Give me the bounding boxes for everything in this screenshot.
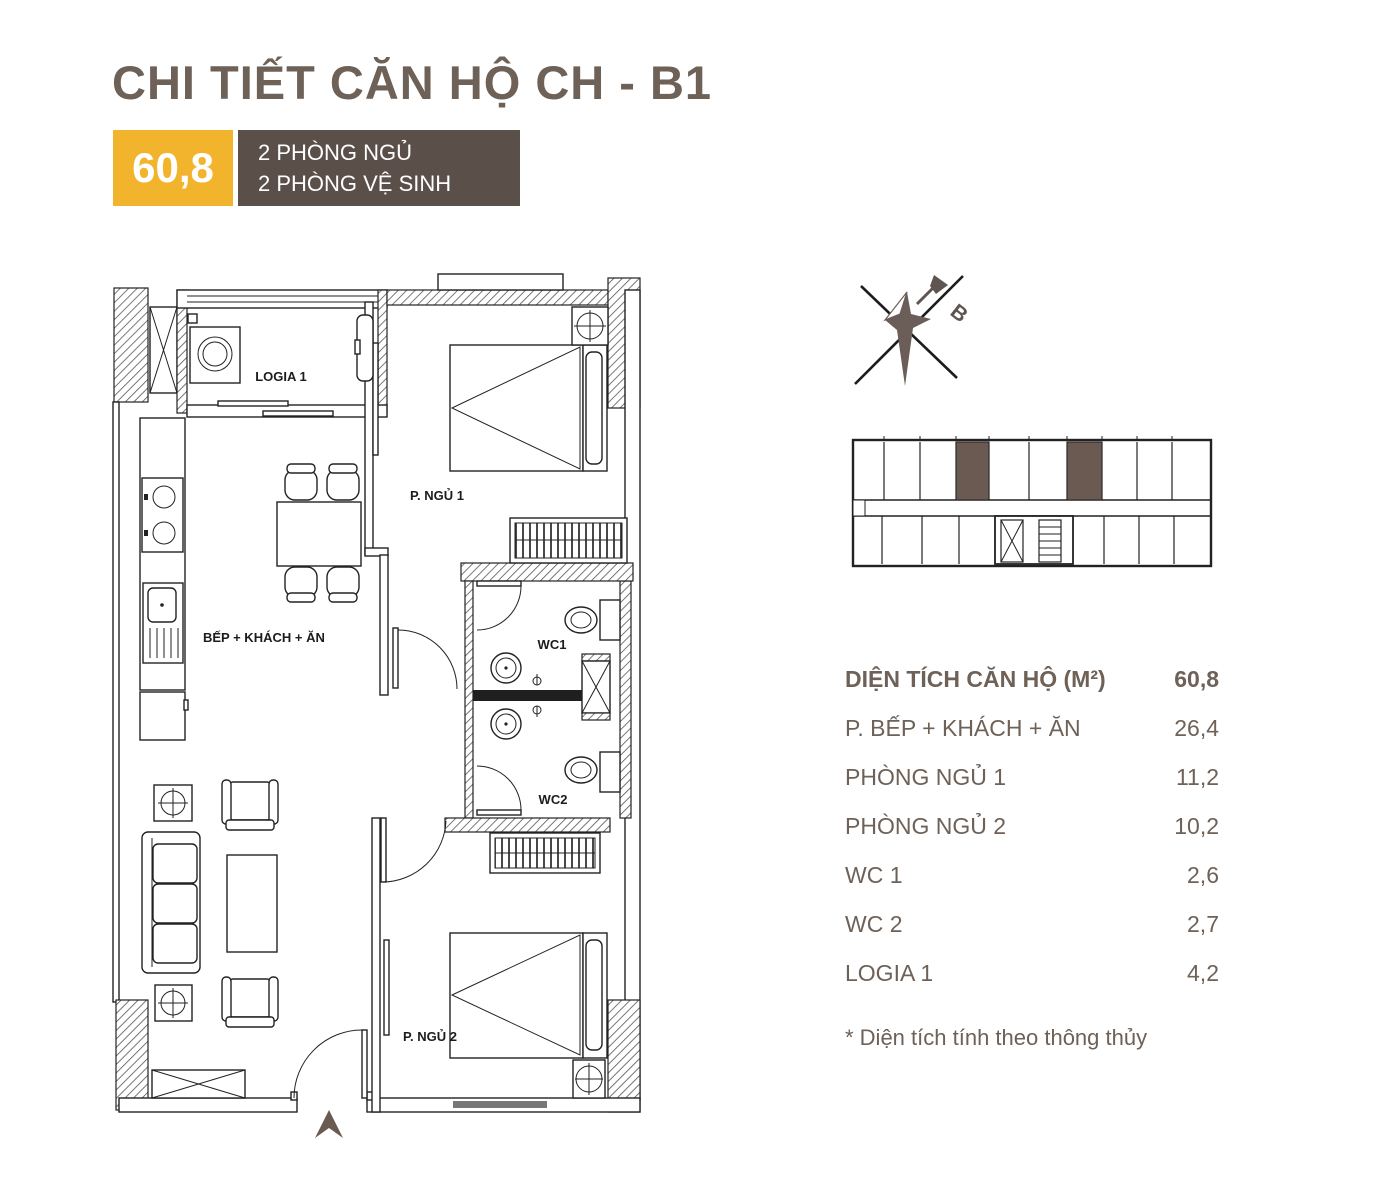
row-value: 4,2 <box>1187 960 1219 987</box>
table-row: P. BẾP + KHÁCH + ĂN 26,4 <box>845 715 1219 742</box>
water-heater-icon <box>355 315 373 381</box>
table-row: WC 1 2,6 <box>845 862 1219 889</box>
side-table-1 <box>154 785 192 821</box>
wc2-label: WC2 <box>539 792 568 807</box>
compass-star <box>885 292 931 386</box>
wardrobe-1 <box>510 518 627 563</box>
sink-1-icon <box>491 653 521 683</box>
living-room-furniture <box>142 780 278 1098</box>
area-badge: 60,8 <box>113 130 233 206</box>
table-row: PHÒNG NGỦ 2 10,2 <box>845 813 1219 840</box>
row-value: 11,2 <box>1176 764 1219 791</box>
row-label: LOGIA 1 <box>845 960 933 987</box>
page-title: CHI TIẾT CĂN HỘ CH - B1 <box>112 55 712 110</box>
side-table-2 <box>155 985 192 1021</box>
area-table-header: DIỆN TÍCH CĂN HỘ (M²) 60,8 <box>845 666 1219 693</box>
bedroom1-label: P. NGỦ 1 <box>410 488 464 503</box>
nightstand-1 <box>572 307 608 345</box>
table-row: LOGIA 1 4,2 <box>845 960 1219 987</box>
sink-2-icon <box>491 709 521 739</box>
floor-plan-drawing: LOGIA 1 P. NGỦ 1 BẾP + KHÁCH + ĂN WC1 WC… <box>100 240 660 1145</box>
nightstand-2 <box>573 1060 605 1098</box>
row-label: P. BẾP + KHÁCH + ĂN <box>845 715 1081 742</box>
area-badge-value: 60,8 <box>132 144 214 192</box>
washing-machine-icon <box>188 314 240 383</box>
sink-icon <box>143 583 183 663</box>
bathroom-count-label: 2 PHÒNG VỆ SINH <box>258 168 520 199</box>
compass-rose: B <box>845 262 980 402</box>
area-table: DIỆN TÍCH CĂN HỘ (M²) 60,8 P. BẾP + KHÁC… <box>845 666 1219 1051</box>
wc1-label: WC1 <box>538 637 567 652</box>
armchair-2 <box>222 977 278 1027</box>
toilet-1-icon <box>565 600 620 640</box>
stove-icon <box>142 478 183 552</box>
tv-cabinet <box>152 1070 245 1098</box>
bedroom2-furniture <box>450 833 607 1098</box>
coffee-table <box>227 855 277 952</box>
room-count-box: 2 PHÒNG NGỦ 2 PHÒNG VỆ SINH <box>238 130 520 206</box>
floor-drain-2-icon <box>533 706 541 717</box>
entry-arrow-icon <box>315 1110 343 1138</box>
wardrobe-2 <box>490 833 600 873</box>
dining-set <box>277 464 361 602</box>
highlighted-unit-2 <box>1067 442 1102 500</box>
bedroom2-label: P. NGỦ 2 <box>403 1029 457 1044</box>
armchair-1 <box>222 780 278 830</box>
building-key-plan <box>851 434 1216 574</box>
bedroom-count-label: 2 PHÒNG NGỦ <box>258 137 520 168</box>
row-label: WC 2 <box>845 911 903 938</box>
table-row: WC 2 2,7 <box>845 911 1219 938</box>
fridge-icon <box>140 692 188 740</box>
logia-label: LOGIA 1 <box>255 369 307 384</box>
kitchen-living-label: BẾP + KHÁCH + ĂN <box>203 630 325 645</box>
kitchen-counter <box>140 418 188 740</box>
row-value: 10,2 <box>1174 813 1219 840</box>
row-label: WC 1 <box>845 862 903 889</box>
sofa <box>142 832 200 973</box>
row-value: 2,6 <box>1187 862 1219 889</box>
area-footnote: * Diện tích tính theo thông thủy <box>845 1025 1219 1051</box>
bed-2 <box>450 933 607 1058</box>
row-label: PHÒNG NGỦ 2 <box>845 813 1006 840</box>
north-label: B <box>946 300 972 327</box>
row-value: 2,7 <box>1187 911 1219 938</box>
bed-1 <box>450 345 607 471</box>
highlighted-unit-1 <box>956 442 989 500</box>
bedroom1-furniture <box>450 307 627 563</box>
floor-drain-1-icon <box>533 674 541 685</box>
area-table-header-label: DIỆN TÍCH CĂN HỘ (M²) <box>845 666 1106 693</box>
building-core <box>995 516 1073 564</box>
table-row: PHÒNG NGỦ 1 11,2 <box>845 764 1219 791</box>
row-value: 26,4 <box>1174 715 1219 742</box>
toilet-2-icon <box>565 752 620 792</box>
apartment-detail-page: CHI TIẾT CĂN HỘ CH - B1 60,8 2 PHÒNG NGỦ… <box>0 0 1391 1200</box>
area-table-header-value: 60,8 <box>1174 666 1219 693</box>
north-arrow-icon <box>930 275 948 294</box>
row-label: PHÒNG NGỦ 1 <box>845 764 1006 791</box>
